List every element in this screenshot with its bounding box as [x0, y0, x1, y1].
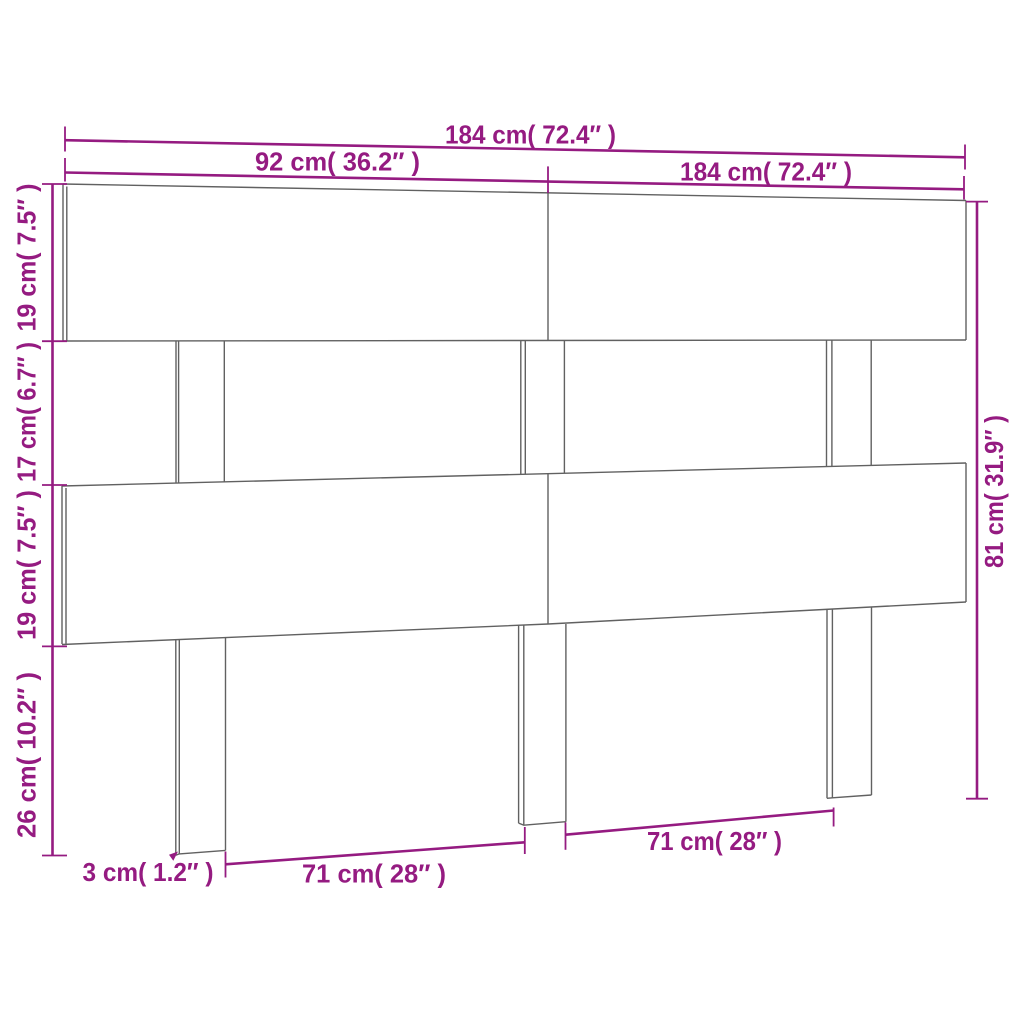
svg-text:71 cm( 28″ ): 71 cm( 28″ ) — [302, 859, 446, 889]
svg-text:184 cm( 72.4″ ): 184 cm( 72.4″ ) — [680, 157, 852, 187]
svg-text:92 cm( 36.2″ ): 92 cm( 36.2″ ) — [255, 147, 420, 177]
svg-text:17 cm( 6.7″ ): 17 cm( 6.7″ ) — [12, 342, 42, 482]
svg-text:19 cm( 7.5″ ): 19 cm( 7.5″ ) — [12, 490, 42, 640]
svg-text:81 cm( 31.9″ ): 81 cm( 31.9″ ) — [979, 415, 1009, 568]
svg-text:71 cm( 28″ ): 71 cm( 28″ ) — [647, 826, 782, 856]
svg-text:184 cm( 72.4″ ): 184 cm( 72.4″ ) — [445, 120, 616, 150]
svg-text:26 cm( 10.2″ ): 26 cm( 10.2″ ) — [12, 672, 42, 838]
svg-text:3 cm( 1.2″ ): 3 cm( 1.2″ ) — [83, 857, 214, 887]
svg-text:19 cm( 7.5″ ): 19 cm( 7.5″ ) — [12, 184, 42, 332]
